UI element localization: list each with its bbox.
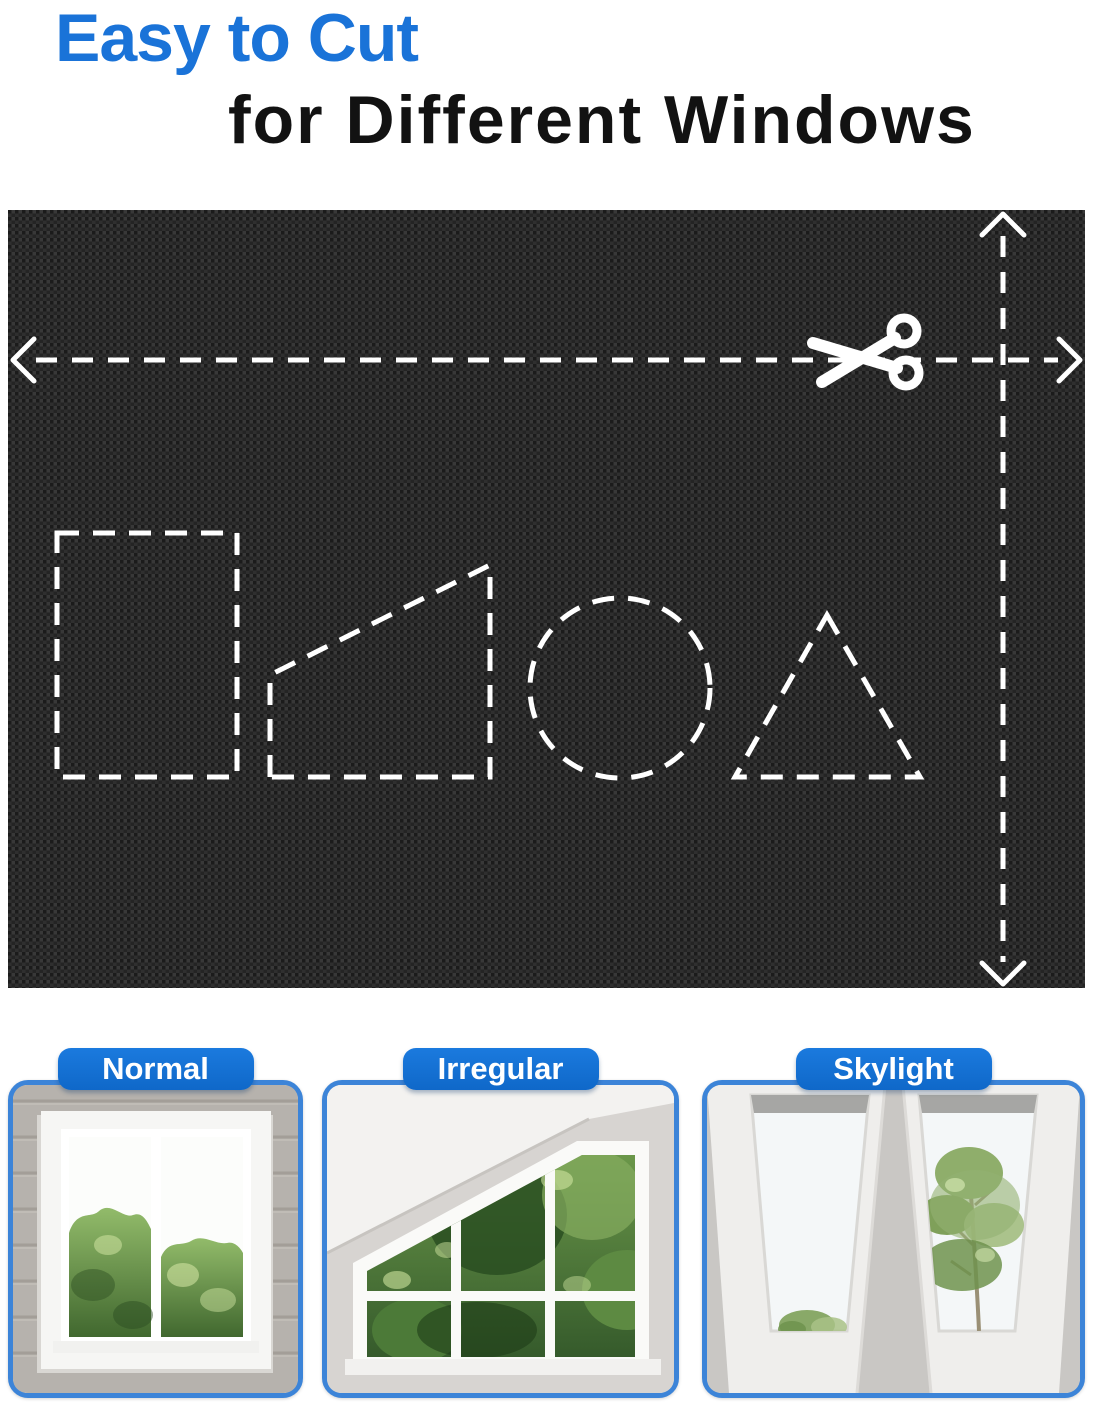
title-accent-line: Easy to Cut — [55, 4, 418, 72]
window-sill — [53, 1341, 259, 1353]
left-skylight-pane — [751, 1095, 869, 1331]
right-blind-housing — [919, 1095, 1037, 1113]
title-main-line: for Different Windows — [228, 86, 976, 154]
blackout-fabric-panel — [8, 210, 1085, 988]
window-card-irregular: Irregular — [322, 1080, 679, 1398]
window-type-badge-skylight: Skylight — [796, 1048, 992, 1090]
dashed-arrow-vertical — [982, 214, 1024, 984]
cut-shape-rectangle — [57, 533, 237, 777]
window-type-badge-normal: Normal — [58, 1048, 254, 1090]
skylight-window-photo — [707, 1085, 1080, 1393]
cut-shape-triangle — [735, 615, 920, 777]
cut-guides-overlay — [8, 210, 1085, 988]
scissors-icon — [813, 318, 919, 386]
window-card-normal: Normal — [8, 1080, 303, 1398]
irregular-window-illustration — [327, 1085, 674, 1393]
left-blind-housing — [751, 1095, 869, 1113]
irregular-window-photo — [327, 1085, 674, 1393]
normal-window-photo — [13, 1085, 298, 1393]
skylight-window-illustration — [707, 1085, 1080, 1393]
window-sill — [345, 1359, 661, 1375]
window-type-badge-irregular: Irregular — [403, 1048, 599, 1090]
cut-shape-trapezoid — [270, 565, 490, 777]
cut-shape-circle — [530, 598, 710, 778]
window-card-skylight: Skylight — [702, 1080, 1085, 1398]
normal-window-illustration — [13, 1085, 298, 1393]
